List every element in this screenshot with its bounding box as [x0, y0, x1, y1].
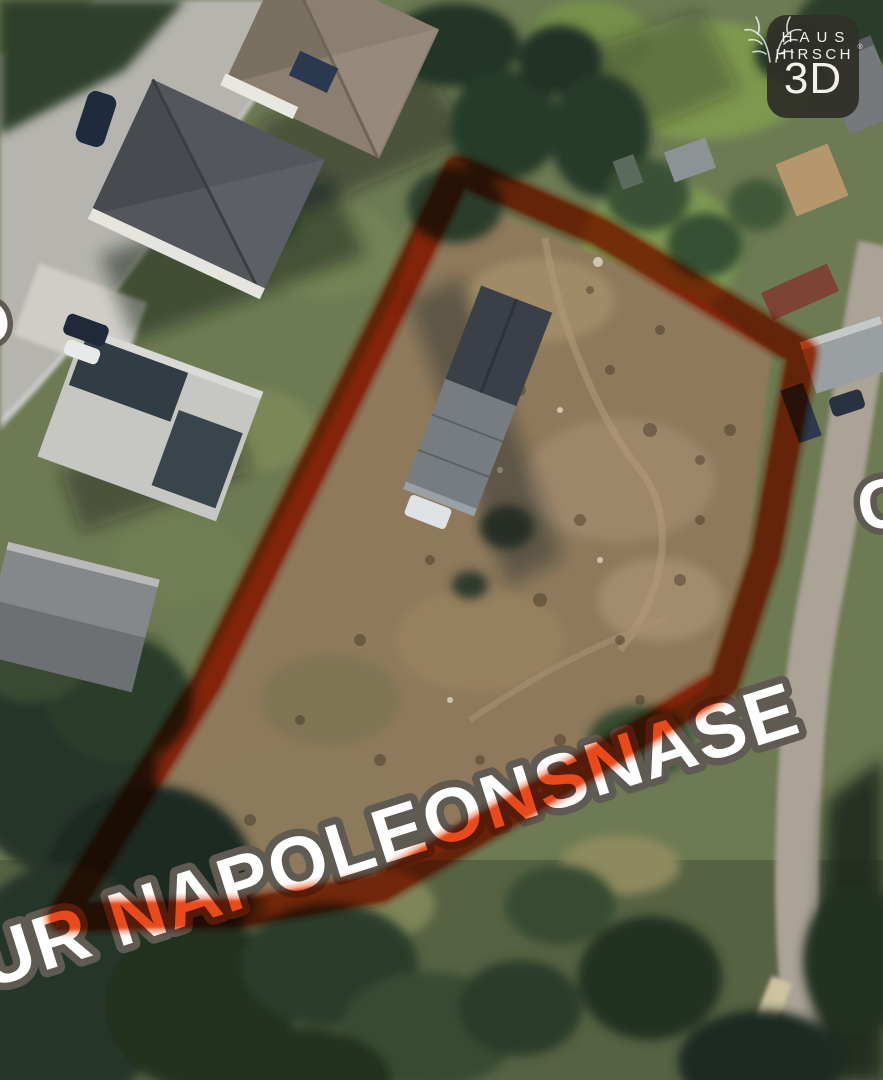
registered-mark: ®	[854, 44, 866, 52]
logo-line-hirsch: HIRSCH®	[767, 46, 859, 64]
haus-hirsch-3d-logo: HAUS HIRSCH® 3D	[767, 15, 859, 118]
aerial-map-screenshot: ZUR NAPOLEONSNASE C O	[0, 0, 883, 1080]
aerial-photo	[0, 0, 883, 1080]
